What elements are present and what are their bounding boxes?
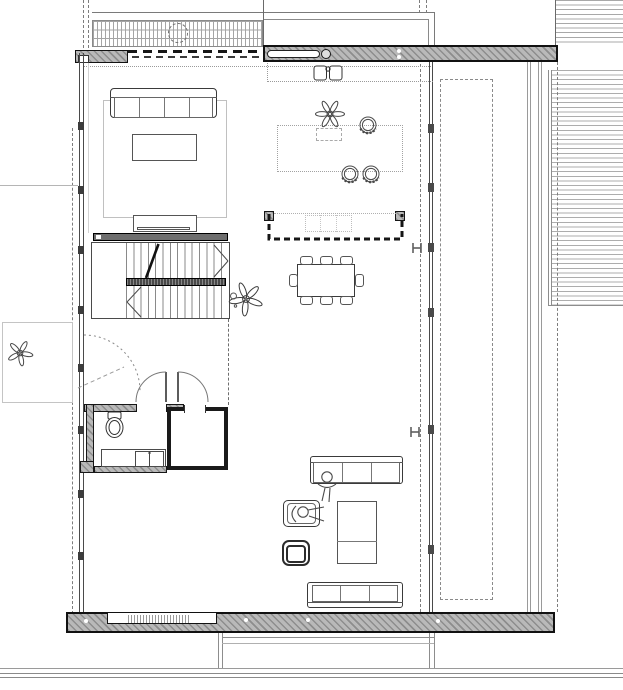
left-door-dashed-swing xyxy=(78,335,140,391)
stair-mid-rail xyxy=(126,278,226,286)
dining-chair xyxy=(320,256,333,265)
plant-icon xyxy=(316,100,345,128)
skylight-dashed-circle xyxy=(168,23,188,43)
void-inner-divider xyxy=(320,215,321,232)
dining-chair xyxy=(340,296,353,305)
step-line xyxy=(222,637,434,638)
overhang-dashed-line xyxy=(557,62,558,612)
wall-joint-dot xyxy=(306,618,310,622)
overhang-dashed-line xyxy=(420,64,421,612)
roof-inner-right xyxy=(428,19,429,45)
stair-treads-lower xyxy=(126,286,228,318)
void-top-dotted xyxy=(274,213,396,214)
mullion xyxy=(428,124,434,133)
grid-dash-line xyxy=(419,0,420,13)
cushion-divider xyxy=(139,98,140,117)
wall-joint-dot xyxy=(436,619,440,623)
shower-room xyxy=(167,407,228,470)
step-edge xyxy=(218,632,219,668)
cushion-divider xyxy=(342,463,343,482)
terrace-dashed-outline xyxy=(440,79,493,600)
deck-boards xyxy=(552,70,623,305)
toilet-icon xyxy=(106,412,123,438)
road-band xyxy=(0,673,623,678)
stair-beam-mark xyxy=(96,235,101,239)
eave-line xyxy=(538,62,539,612)
vanity-sink xyxy=(135,451,164,467)
fireplace-grill xyxy=(128,615,190,623)
glazing-right xyxy=(432,62,433,612)
grid-dash-line xyxy=(83,0,84,53)
dining-chair xyxy=(300,256,313,265)
site-line-long xyxy=(0,668,623,669)
sofa-cushions xyxy=(313,462,400,483)
cushion-divider xyxy=(371,463,372,482)
bath-wall-bottom xyxy=(94,466,167,473)
wall-joint-dot xyxy=(84,619,88,623)
dining-chair xyxy=(300,296,313,305)
armchair-seat xyxy=(286,545,306,563)
mullion xyxy=(428,425,434,434)
coffee-table xyxy=(132,134,197,161)
wall-joint-dot xyxy=(397,49,401,53)
mullion xyxy=(78,490,84,498)
dining-chair xyxy=(320,296,333,305)
deck-edge xyxy=(548,305,623,306)
roof-outline-right xyxy=(434,12,435,45)
tv-bar xyxy=(137,227,190,230)
party-line xyxy=(263,0,264,45)
flue-bar xyxy=(267,50,320,58)
eave-line xyxy=(530,62,531,612)
dining-chair xyxy=(340,256,353,265)
armchair-seat xyxy=(287,503,316,524)
mullion xyxy=(78,186,84,194)
railing-post xyxy=(395,211,405,221)
dining-chair xyxy=(289,274,298,287)
cushion-divider xyxy=(340,586,341,601)
dining-table xyxy=(297,264,355,297)
wall-above-dashed xyxy=(128,50,263,53)
floor-plan xyxy=(0,0,623,690)
mullion xyxy=(428,183,434,192)
lounge-table xyxy=(337,501,377,564)
cushion-divider xyxy=(189,98,190,117)
mullion xyxy=(78,552,84,560)
flue-circle xyxy=(321,49,331,59)
double-door-icon xyxy=(136,372,208,402)
cooktop-dashed xyxy=(316,128,342,141)
bath-wall-step xyxy=(80,461,94,473)
stair-treads-upper xyxy=(126,243,228,278)
eave-line xyxy=(527,62,528,612)
hall-dashed-line xyxy=(228,319,229,405)
cushion-divider xyxy=(369,586,370,601)
grid-dash-line xyxy=(88,0,89,53)
plant-icon xyxy=(229,282,263,316)
railing-post xyxy=(264,211,274,221)
mullion xyxy=(428,545,434,554)
stair-handle xyxy=(231,293,237,307)
glazing-left xyxy=(83,53,84,613)
steel-column-icon xyxy=(411,427,419,437)
step-line xyxy=(222,643,434,644)
mullion xyxy=(428,308,434,317)
void-inner xyxy=(305,215,352,232)
stair-top-beam xyxy=(93,233,228,241)
void-inner-divider xyxy=(336,215,337,232)
mullion xyxy=(78,246,84,254)
eave-line xyxy=(541,62,542,612)
cushion-divider xyxy=(164,98,165,117)
glazing-right xyxy=(429,62,430,612)
site-line xyxy=(0,185,78,186)
mullion xyxy=(78,122,84,130)
dining-chair xyxy=(355,274,364,287)
wall-joint-dot xyxy=(244,618,248,622)
outside-path xyxy=(2,322,73,403)
mullion xyxy=(78,306,84,314)
sofa-cushions xyxy=(312,585,398,602)
shower-door-opening xyxy=(184,405,206,413)
mullion xyxy=(78,426,84,434)
glazing-inner-face xyxy=(88,63,89,233)
sofa-back-line xyxy=(307,602,403,603)
grid-dash-line xyxy=(426,0,427,13)
step-edge xyxy=(434,632,435,668)
mullion xyxy=(78,364,84,372)
deck-edge xyxy=(548,70,549,306)
kitchen-counter xyxy=(267,63,433,82)
deck-boards xyxy=(556,0,623,43)
mullion xyxy=(428,243,434,252)
wall-joint-dot xyxy=(397,55,401,59)
lounge-table-divider xyxy=(337,541,377,542)
roof-inner-top xyxy=(263,19,429,20)
deck-edge xyxy=(551,70,552,306)
glazing-left xyxy=(79,53,80,613)
